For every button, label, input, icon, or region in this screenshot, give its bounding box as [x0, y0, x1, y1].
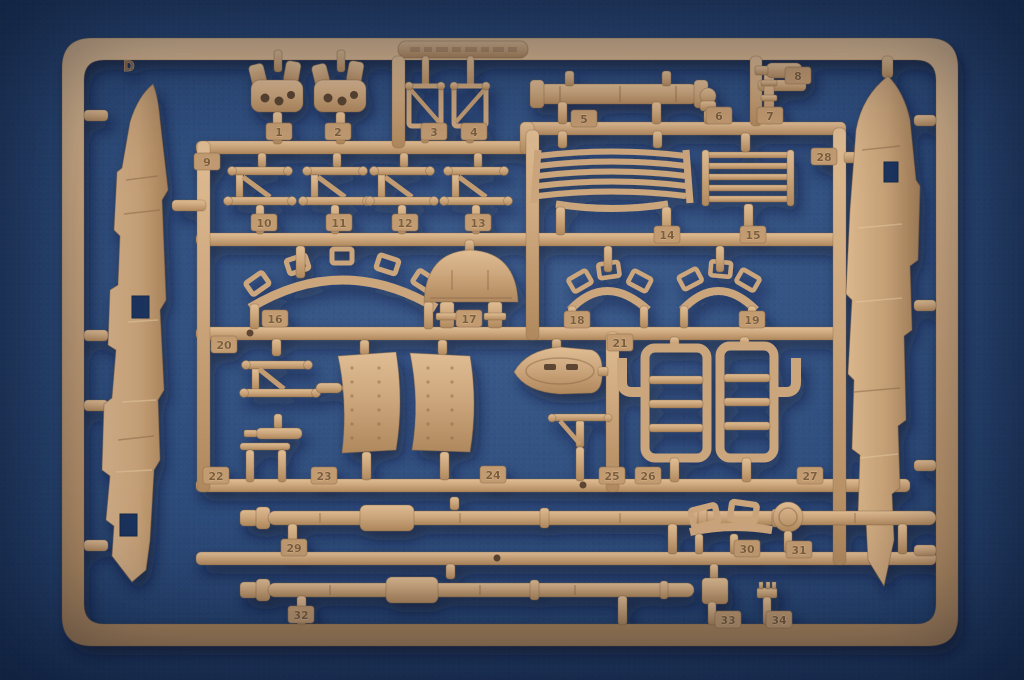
runner-h1-left [196, 141, 538, 154]
part-26-grating [622, 337, 707, 482]
part-tag-28: 28 [811, 148, 837, 165]
part-tag-21: 21 [607, 334, 633, 351]
svg-text:5: 5 [580, 113, 588, 126]
part-tag-16: 16 [262, 310, 288, 327]
part-tag-10: 10 [251, 214, 277, 231]
part-21-boat [514, 339, 608, 394]
svg-text:20: 20 [216, 339, 232, 352]
part-14-curved-grille [534, 131, 690, 235]
svg-text:33: 33 [720, 614, 735, 627]
part-29-gun-barrel [240, 497, 936, 554]
part-tag-7: 7 [757, 107, 783, 124]
svg-text:24: 24 [485, 469, 501, 482]
part-tag-18: 18 [564, 311, 590, 328]
svg-text:1: 1 [275, 126, 283, 139]
runner-v2 [392, 56, 405, 148]
svg-text:26: 26 [640, 470, 656, 483]
svg-text:34: 34 [771, 614, 787, 627]
part-tag-27: 27 [797, 467, 823, 484]
part-tag-2: 2 [325, 123, 351, 140]
svg-text:6: 6 [715, 110, 723, 123]
part-tag-23: 23 [311, 467, 337, 484]
part-tag-20: 20 [211, 336, 237, 353]
part-28-right-hull [846, 76, 920, 586]
svg-text:29: 29 [286, 542, 301, 555]
svg-text:31: 31 [791, 544, 806, 557]
part-tag-22: 22 [203, 467, 229, 484]
part-tag-25: 25 [599, 467, 625, 484]
part-tag-3: 3 [421, 123, 447, 140]
part-15-flat-grille [702, 133, 794, 235]
part-tag-14: 14 [654, 226, 680, 243]
part-27-grating [720, 337, 796, 482]
sprue-drawing: D 1 2 3 4 5 6 7 8 9 10 11 12 13 14 15 16… [0, 0, 1024, 680]
svg-text:2: 2 [334, 126, 342, 139]
svg-text:30: 30 [739, 543, 755, 556]
runner-v1 [197, 141, 210, 492]
runner-v5 [833, 128, 846, 565]
runner-h1-right [520, 122, 846, 135]
molding-mark-plaque [398, 41, 528, 58]
svg-text:16: 16 [267, 313, 283, 326]
svg-text:12: 12 [397, 217, 412, 230]
part-tag-13: 13 [465, 214, 491, 231]
part-tag-15: 15 [740, 226, 766, 243]
svg-text:28: 28 [816, 151, 831, 164]
svg-text:19: 19 [744, 314, 759, 327]
svg-text:15: 15 [745, 229, 760, 242]
svg-text:25: 25 [604, 470, 619, 483]
part-tag-4: 4 [461, 123, 487, 140]
part-24-fender [410, 340, 474, 480]
runner-grid [84, 56, 936, 565]
svg-text:8: 8 [794, 70, 802, 83]
part-23-fender [338, 340, 400, 480]
svg-text:32: 32 [293, 609, 308, 622]
sprue-letter: D [123, 59, 135, 75]
part-22-stand [240, 414, 302, 482]
part-tag-17: 17 [456, 310, 482, 327]
part-tag-29: 29 [281, 539, 307, 556]
part-tag-34: 34 [766, 611, 792, 628]
part-tag-1: 1 [266, 123, 292, 140]
svg-text:21: 21 [612, 337, 627, 350]
svg-text:27: 27 [802, 470, 817, 483]
svg-text:23: 23 [316, 470, 331, 483]
part-tag-33: 33 [715, 611, 741, 628]
svg-text:13: 13 [470, 217, 485, 230]
svg-text:7: 7 [766, 110, 774, 123]
part-tag-6: 6 [706, 107, 732, 124]
part-20-bracket [240, 339, 351, 398]
svg-text:3: 3 [430, 126, 438, 139]
part-tag-11: 11 [326, 214, 352, 231]
part-5-cylinder [530, 71, 708, 124]
part-tag-26: 26 [635, 467, 661, 484]
svg-text:10: 10 [256, 217, 272, 230]
svg-text:9: 9 [203, 156, 211, 169]
svg-text:17: 17 [461, 313, 476, 326]
svg-text:4: 4 [470, 126, 478, 139]
part-tag-30: 30 [734, 540, 760, 557]
part-tag-12: 12 [392, 214, 418, 231]
part-9-left-hull [102, 84, 168, 582]
part-tag-31: 31 [786, 541, 812, 558]
part-tag-9: 9 [194, 153, 220, 170]
svg-text:22: 22 [208, 470, 223, 483]
svg-text:14: 14 [659, 229, 675, 242]
part-tag-24: 24 [480, 466, 506, 483]
svg-text:11: 11 [331, 217, 346, 230]
part-tag-5: 5 [571, 110, 597, 127]
svg-text:18: 18 [569, 314, 584, 327]
part-tag-32: 32 [288, 606, 314, 623]
part-tag-19: 19 [739, 311, 765, 328]
sprue-photo: D 1 2 3 4 5 6 7 8 9 10 11 12 13 14 15 16… [0, 0, 1024, 680]
part-tag-8: 8 [785, 67, 811, 84]
